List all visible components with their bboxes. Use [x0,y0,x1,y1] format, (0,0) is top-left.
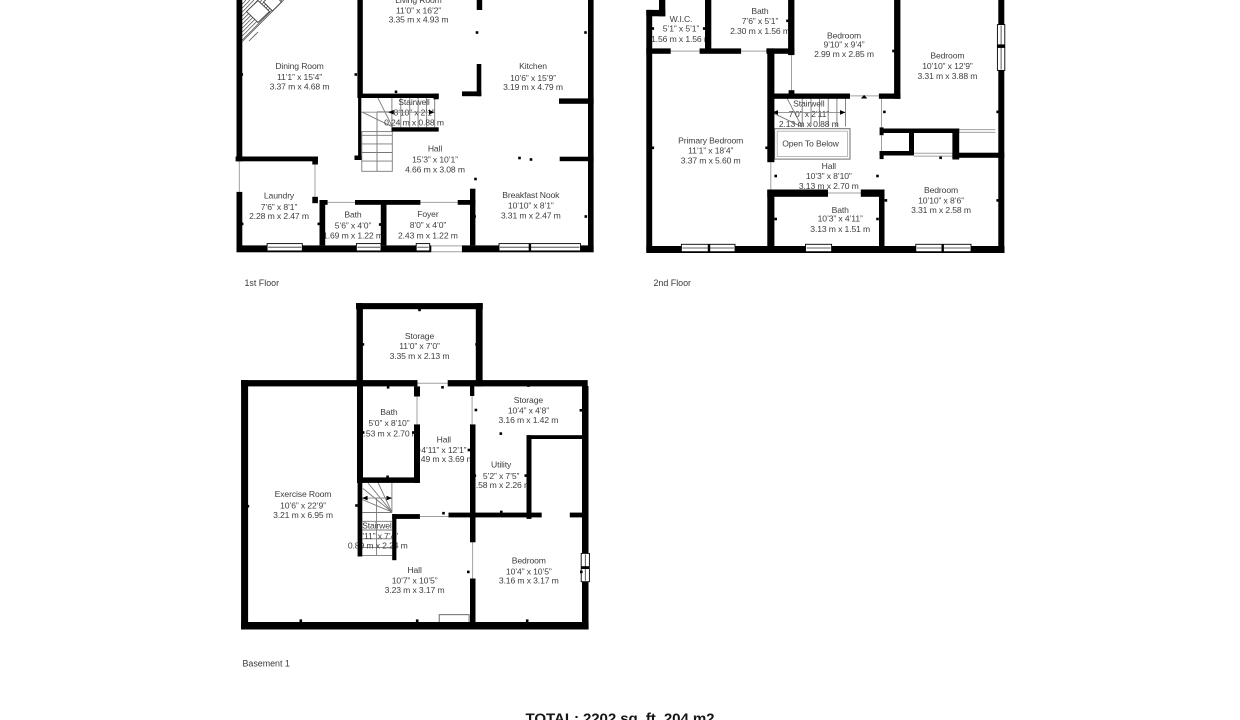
svg-text:10’10” x 8’1”: 10’10” x 8’1” [508,201,554,211]
svg-text:Basement 1: Basement 1 [243,659,290,669]
svg-text:TOTAL: 2202 sq. ft. 204 m2: TOTAL: 2202 sq. ft. 204 m2 [526,710,715,720]
svg-text:Breakfast Nook: Breakfast Nook [502,190,560,200]
svg-text:Foyer: Foyer [417,209,439,219]
svg-text:Exercise Room: Exercise Room [275,489,332,499]
svg-text:Utility: Utility [491,459,512,469]
svg-text:3.16 m x 1.42 m: 3.16 m x 1.42 m [498,415,558,425]
svg-text:Storage: Storage [405,331,435,341]
svg-text:3.35 m x 4.93 m: 3.35 m x 4.93 m [389,15,449,25]
svg-text:9’10” x 9’4”: 9’10” x 9’4” [823,40,864,50]
svg-text:2.53 m x 2.70 m: 2.53 m x 2.70 m [359,428,419,438]
svg-text:5’1” x 5’1”: 5’1” x 5’1” [663,24,700,34]
svg-text:3.31 m x 3.88 m: 3.31 m x 3.88 m [917,71,977,81]
svg-text:7’6” x 5’1”: 7’6” x 5’1” [742,16,779,26]
svg-text:3.13 m x 1.51 m: 3.13 m x 1.51 m [810,224,870,234]
svg-text:3.37 m x 4.68 m: 3.37 m x 4.68 m [270,82,330,92]
svg-text:Dining Room: Dining Room [275,61,323,71]
svg-text:15’3” x 10’1”: 15’3” x 10’1” [412,155,458,165]
svg-text:Hall: Hall [822,161,837,171]
svg-text:1st Floor: 1st Floor [245,278,280,288]
svg-text:0.89 m x 2.24 m: 0.89 m x 2.24 m [348,541,408,551]
svg-text:2nd Floor: 2nd Floor [654,278,692,288]
svg-text:5’0” x 8’10”: 5’0” x 8’10” [368,418,409,428]
svg-text:3.23 m x 3.17 m: 3.23 m x 3.17 m [385,585,445,595]
svg-text:10’6” x 22’9”: 10’6” x 22’9” [280,501,326,511]
svg-text:Open To Below: Open To Below [782,138,839,148]
svg-text:3.37 m x 5.60 m: 3.37 m x 5.60 m [681,155,741,165]
svg-text:3.16 m x 3.17 m: 3.16 m x 3.17 m [499,576,559,586]
svg-text:3.21 m x 6.95 m: 3.21 m x 6.95 m [273,510,333,520]
svg-text:2.99 m x 2.85 m: 2.99 m x 2.85 m [814,49,874,59]
svg-text:1.49 m x 3.69 m: 1.49 m x 3.69 m [414,454,474,464]
svg-text:3.31 m x 2.58 m: 3.31 m x 2.58 m [911,205,971,215]
svg-text:5’6” x 4’0”: 5’6” x 4’0” [335,220,372,230]
svg-text:11’1” x 18’4”: 11’1” x 18’4” [688,146,733,156]
svg-text:Kitchen: Kitchen [519,61,547,71]
svg-text:10’10” x 12’9”: 10’10” x 12’9” [922,61,973,71]
svg-text:Stairwell: Stairwell [362,521,394,531]
svg-text:7’0” x 2’11”: 7’0” x 2’11” [789,109,830,119]
svg-text:Hall: Hall [437,434,452,444]
svg-text:11’1” x 15’4”: 11’1” x 15’4” [277,72,322,82]
svg-text:3.31 m x 2.47 m: 3.31 m x 2.47 m [501,210,561,220]
svg-text:Living Room: Living Room [395,0,441,5]
svg-text:0.24 m x 0.88 m: 0.24 m x 0.88 m [384,117,444,127]
svg-text:8’0” x 4’0”: 8’0” x 4’0” [410,220,447,230]
svg-text:1.56 m x 1.56 m: 1.56 m x 1.56 m [651,34,711,44]
svg-text:Bath: Bath [380,407,398,417]
svg-text:2.13 m x 0.88 m: 2.13 m x 0.88 m [779,119,839,129]
svg-text:10’3” x 4’11”: 10’3” x 4’11” [818,214,863,224]
svg-text:Stairwell: Stairwell [398,97,430,107]
svg-text:Primary Bedroom: Primary Bedroom [678,136,743,146]
svg-text:Storage: Storage [514,395,544,405]
svg-text:Hall: Hall [428,144,443,154]
svg-text:11’0” x 7’0”: 11’0” x 7’0” [399,341,440,351]
svg-text:3.35 m x 2.13 m: 3.35 m x 2.13 m [390,351,450,361]
svg-text:Stairwell: Stairwell [793,98,825,108]
svg-text:Hall: Hall [407,565,422,575]
svg-text:Bedroom: Bedroom [924,185,958,195]
svg-text:2.28 m x 2.47 m: 2.28 m x 2.47 m [249,211,309,221]
svg-text:1.69 m x 1.22 m: 1.69 m x 1.22 m [323,231,383,241]
svg-text:Bath: Bath [344,210,362,220]
svg-text:10’10” x 8’6”: 10’10” x 8’6” [918,196,964,206]
svg-text:Laundry: Laundry [264,191,295,201]
svg-text:4.66 m x 3.08 m: 4.66 m x 3.08 m [405,165,465,175]
svg-text:Bath: Bath [751,6,769,16]
svg-text:Bedroom: Bedroom [930,51,964,61]
svg-text:2.30 m x 1.56 m: 2.30 m x 1.56 m [730,26,790,36]
svg-text:2.43 m x 1.22 m: 2.43 m x 1.22 m [398,230,458,240]
svg-text:1.58 m x 2.26 m: 1.58 m x 2.26 m [471,480,531,490]
svg-text:Bedroom: Bedroom [512,555,546,565]
svg-text:3.19 m x 4.79 m: 3.19 m x 4.79 m [503,82,563,92]
svg-text:W.I.C.: W.I.C. [670,14,693,24]
svg-text:10’3” x 8’10”: 10’3” x 8’10” [806,171,852,181]
